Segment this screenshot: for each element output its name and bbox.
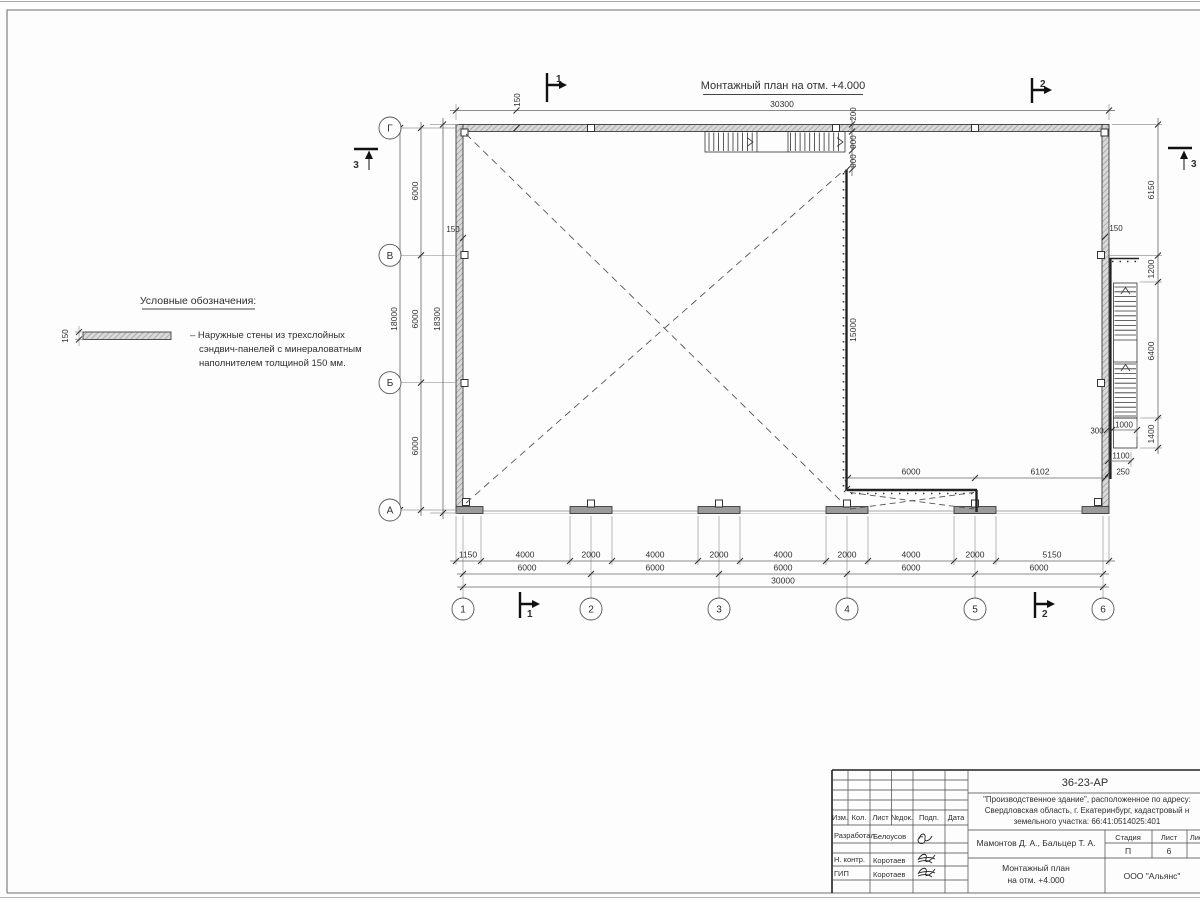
tb-stage-value: П [1125, 846, 1131, 856]
dim-left-wall: 150 [446, 225, 460, 234]
stair-right [1109, 259, 1139, 480]
dimension-ticks [397, 108, 1161, 591]
legend-header: Условные обозначения: [140, 295, 256, 307]
tb-name2: Коротаев [873, 856, 905, 865]
section-label-3: 3 [1191, 159, 1197, 170]
pier [698, 507, 740, 514]
section-label-1: 1 [527, 609, 533, 620]
tb-role3: ГИП [834, 869, 849, 878]
dim-b6: 4000 [774, 550, 793, 560]
dim-rs1000: 1000 [1115, 421, 1133, 430]
dim-b3: 2000 [582, 550, 601, 560]
axis-label-6: 6 [1100, 605, 1106, 616]
dim-span: 6000 [646, 563, 665, 573]
dim-b9: 2000 [966, 550, 985, 560]
legend-wall-symbol [83, 332, 171, 340]
axis-label-1: 1 [460, 605, 466, 616]
axis-label-2: 2 [588, 605, 594, 616]
tb-sheets-label: Листов [1190, 833, 1200, 842]
dim-b2: 4000 [516, 550, 535, 560]
section-arrow-icon [532, 600, 540, 608]
tb-col-list: Лист [872, 813, 889, 822]
tb-authors: Мамонтов Д. А., Бальцер Т. А. [976, 838, 1095, 848]
pier [1082, 507, 1109, 514]
dim-rs250: 250 [1116, 468, 1130, 477]
dim-span: 6000 [1030, 563, 1049, 573]
axis-label-5: 5 [972, 605, 978, 616]
legend-item-line3: наполнителем толщиной 150 мм. [199, 358, 346, 369]
dim-inner2: 6102 [1031, 467, 1050, 477]
signature-icon [918, 834, 935, 877]
axis-label-3: 3 [716, 605, 722, 616]
tb-col-data: Дата [948, 813, 965, 822]
tb-col-izm: Изм. [832, 813, 848, 822]
dim-stair-flight1: 900 [849, 135, 858, 149]
dim-span: 6000 [518, 563, 537, 573]
dim-top-total: 30300 [770, 99, 794, 109]
pier [570, 507, 612, 514]
tb-col-kol: Кол. [852, 813, 867, 822]
dim-left-bay: 6000 [410, 309, 420, 328]
drawing-sheet: Монтажный план на отм. +4.000 [0, 0, 1200, 900]
tb-col-ndok: №док. [891, 813, 913, 822]
tb-company: ООО "Альянс" [1124, 871, 1181, 881]
axis-label-g: Г [387, 124, 393, 135]
section-labels: 1 1 2 2 3 3 [353, 74, 1197, 620]
stair-arrow-icon [837, 138, 843, 147]
extension-lines [401, 104, 1162, 598]
legend-item-line1: – Наружные стены из трехслойных [190, 330, 345, 341]
axis-label-b: Б [387, 378, 394, 389]
dim-rs1100: 1100 [1112, 452, 1130, 461]
axis-bubble-labels-bottom: 1 2 3 4 5 6 [460, 605, 1106, 616]
dim-b7: 2000 [838, 550, 857, 560]
dim-interior-wall: 15000 [848, 318, 858, 342]
section-label-2: 2 [1042, 609, 1048, 620]
tb-role1: Разработал [834, 831, 875, 840]
tb-name3: Коротаев [873, 870, 905, 879]
axis-label-4: 4 [844, 605, 850, 616]
stair-top [705, 132, 845, 153]
stair-arrow-icon [1121, 288, 1130, 295]
tb-sheet-value: 6 [1167, 846, 1172, 856]
stair-arrow-icon [1121, 365, 1130, 372]
wall-top [456, 125, 1109, 132]
dim-b4: 4000 [646, 550, 665, 560]
tb-drawing-title-l1: Монтажный план [1002, 863, 1070, 873]
pier [456, 507, 483, 514]
dim-b5: 2000 [710, 550, 729, 560]
dim-span: 6000 [902, 563, 921, 573]
plan-walls [456, 125, 1109, 514]
dim-top-wall: 150 [513, 93, 522, 107]
dim-rs300: 300 [1090, 427, 1104, 436]
section-label-1: 1 [556, 74, 562, 85]
dim-span: 6000 [774, 563, 793, 573]
wall-right [1102, 125, 1109, 514]
dim-right4: 1400 [1146, 424, 1156, 443]
drawing-title: Монтажный план на отм. +4.000 [701, 80, 865, 92]
dim-b1: 1150 [459, 550, 478, 560]
dim-b8: 4000 [902, 550, 921, 560]
tb-col-podp: Подп. [919, 813, 939, 822]
tb-name1: Белоусов [873, 832, 906, 841]
tb-role2: Н. контр. [834, 855, 865, 864]
section-label-3: 3 [353, 160, 359, 171]
dim-stair-flight2: 900 [849, 154, 858, 168]
section-arrow-icon [1047, 600, 1055, 608]
axis-bubbles-bottom [452, 598, 1114, 620]
dim-left-bay: 6000 [410, 181, 420, 200]
column-markers [461, 125, 1108, 508]
section-label-2: 2 [1040, 79, 1046, 90]
tb-sheet-label: Лист [1161, 833, 1178, 842]
project-line1: "Производственное здание", расположенное… [983, 795, 1191, 804]
dim-right3: 6400 [1146, 341, 1156, 360]
axis-label-v: В [387, 251, 394, 262]
legend-wall-thickness: 150 [61, 329, 70, 343]
section-arrow-icon [365, 151, 373, 160]
dim-bottom-total: 30000 [771, 576, 795, 586]
page-frame [0, 2, 1200, 898]
drawing-title-group: Монтажный план на отм. +4.000 [701, 80, 865, 95]
dim-right2: 1200 [1146, 259, 1156, 278]
legend: Условные обозначения: 150 – Наружные сте… [61, 295, 362, 369]
dim-right-wall: 150 [1109, 224, 1123, 233]
dim-left-total: 18000 [389, 307, 399, 331]
title-block: 36-23-АР "Производственное здание", расп… [832, 770, 1200, 893]
opening-cross-large [466, 134, 843, 503]
project-line3: земельного участка: 66:41:0514025:401 [1014, 817, 1161, 826]
dim-left-bay: 6000 [410, 436, 420, 455]
plan-bottom-side [456, 507, 1109, 514]
section-arrow-icon [1180, 151, 1188, 160]
dim-left-outer: 18300 [432, 307, 442, 331]
dim-right1: 6150 [1146, 180, 1156, 199]
dimension-lines [400, 111, 1158, 588]
interior-walls [844, 170, 978, 513]
wall-left [456, 125, 463, 514]
dim-inner1: 6000 [902, 467, 921, 477]
tb-stage-label: Стадия [1115, 833, 1141, 842]
section-marks [354, 73, 1192, 618]
dim-stair-offset: 200 [849, 107, 858, 121]
doc-number: 36-23-АР [1062, 777, 1108, 789]
axis-label-a: А [387, 506, 394, 517]
project-line2: Свердловская область, г. Екатеринбург, к… [985, 806, 1190, 815]
plan-canvas: Монтажный план на отм. +4.000 [0, 0, 1200, 900]
tb-drawing-title-l2: на отм. +4.000 [1007, 875, 1064, 885]
legend-item-line2: сэндвич-панелей с минераловатным [199, 344, 362, 355]
dim-b10: 5150 [1043, 550, 1062, 560]
